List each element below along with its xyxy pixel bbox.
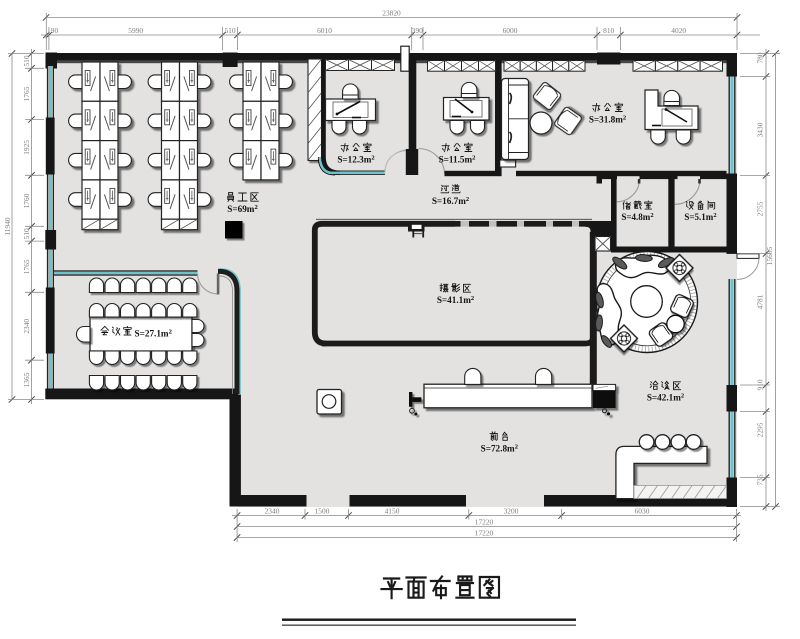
svg-text:90: 90 — [51, 26, 59, 35]
svg-text:810: 810 — [603, 26, 614, 35]
svg-text:23820: 23820 — [382, 9, 401, 18]
svg-text:2755: 2755 — [756, 201, 765, 216]
svg-text:S=12.3m2: S=12.3m2 — [337, 155, 375, 165]
svg-text:S=27.1m2: S=27.1m2 — [135, 329, 173, 339]
svg-text:510: 510 — [22, 55, 31, 66]
svg-text:17220: 17220 — [475, 529, 494, 538]
svg-text:510: 510 — [22, 228, 31, 239]
svg-text:S=31.8m2: S=31.8m2 — [589, 115, 627, 125]
svg-text:11940: 11940 — [3, 217, 12, 236]
svg-text:S=5.1m2: S=5.1m2 — [684, 212, 716, 222]
svg-text:2340: 2340 — [22, 319, 31, 334]
svg-text:390: 390 — [412, 26, 423, 35]
svg-text:3430: 3430 — [756, 122, 765, 137]
svg-text:6000: 6000 — [503, 26, 518, 35]
svg-text:4020: 4020 — [671, 26, 686, 35]
svg-text:S=16.7m2: S=16.7m2 — [432, 196, 470, 206]
svg-text:1760: 1760 — [22, 193, 31, 208]
svg-text:1500: 1500 — [315, 507, 330, 516]
svg-text:5990: 5990 — [128, 26, 143, 35]
svg-text:1765: 1765 — [22, 259, 31, 274]
svg-text:S=42.1m2: S=42.1m2 — [647, 393, 685, 403]
svg-text:S=11.5m2: S=11.5m2 — [439, 155, 477, 165]
svg-text:S=72.8m2: S=72.8m2 — [481, 444, 519, 454]
svg-text:1925: 1925 — [22, 140, 31, 155]
svg-text:15685: 15685 — [765, 246, 774, 265]
svg-text:4150: 4150 — [385, 507, 400, 516]
svg-text:735: 735 — [756, 474, 765, 485]
svg-text:6010: 6010 — [317, 26, 332, 35]
svg-text:1765: 1765 — [22, 86, 31, 101]
svg-text:S=4.8m2: S=4.8m2 — [621, 212, 653, 222]
svg-text:4781: 4781 — [756, 294, 765, 309]
svg-text:2340: 2340 — [265, 507, 280, 516]
svg-text:2295: 2295 — [756, 422, 765, 437]
svg-text:S=41.1m2: S=41.1m2 — [437, 295, 475, 305]
svg-text:S=69m2: S=69m2 — [227, 204, 258, 214]
svg-text:3200: 3200 — [504, 507, 519, 516]
svg-text:1365: 1365 — [22, 372, 31, 387]
svg-text:17220: 17220 — [475, 518, 494, 527]
svg-text:510: 510 — [224, 26, 235, 35]
svg-text:6030: 6030 — [635, 507, 650, 516]
